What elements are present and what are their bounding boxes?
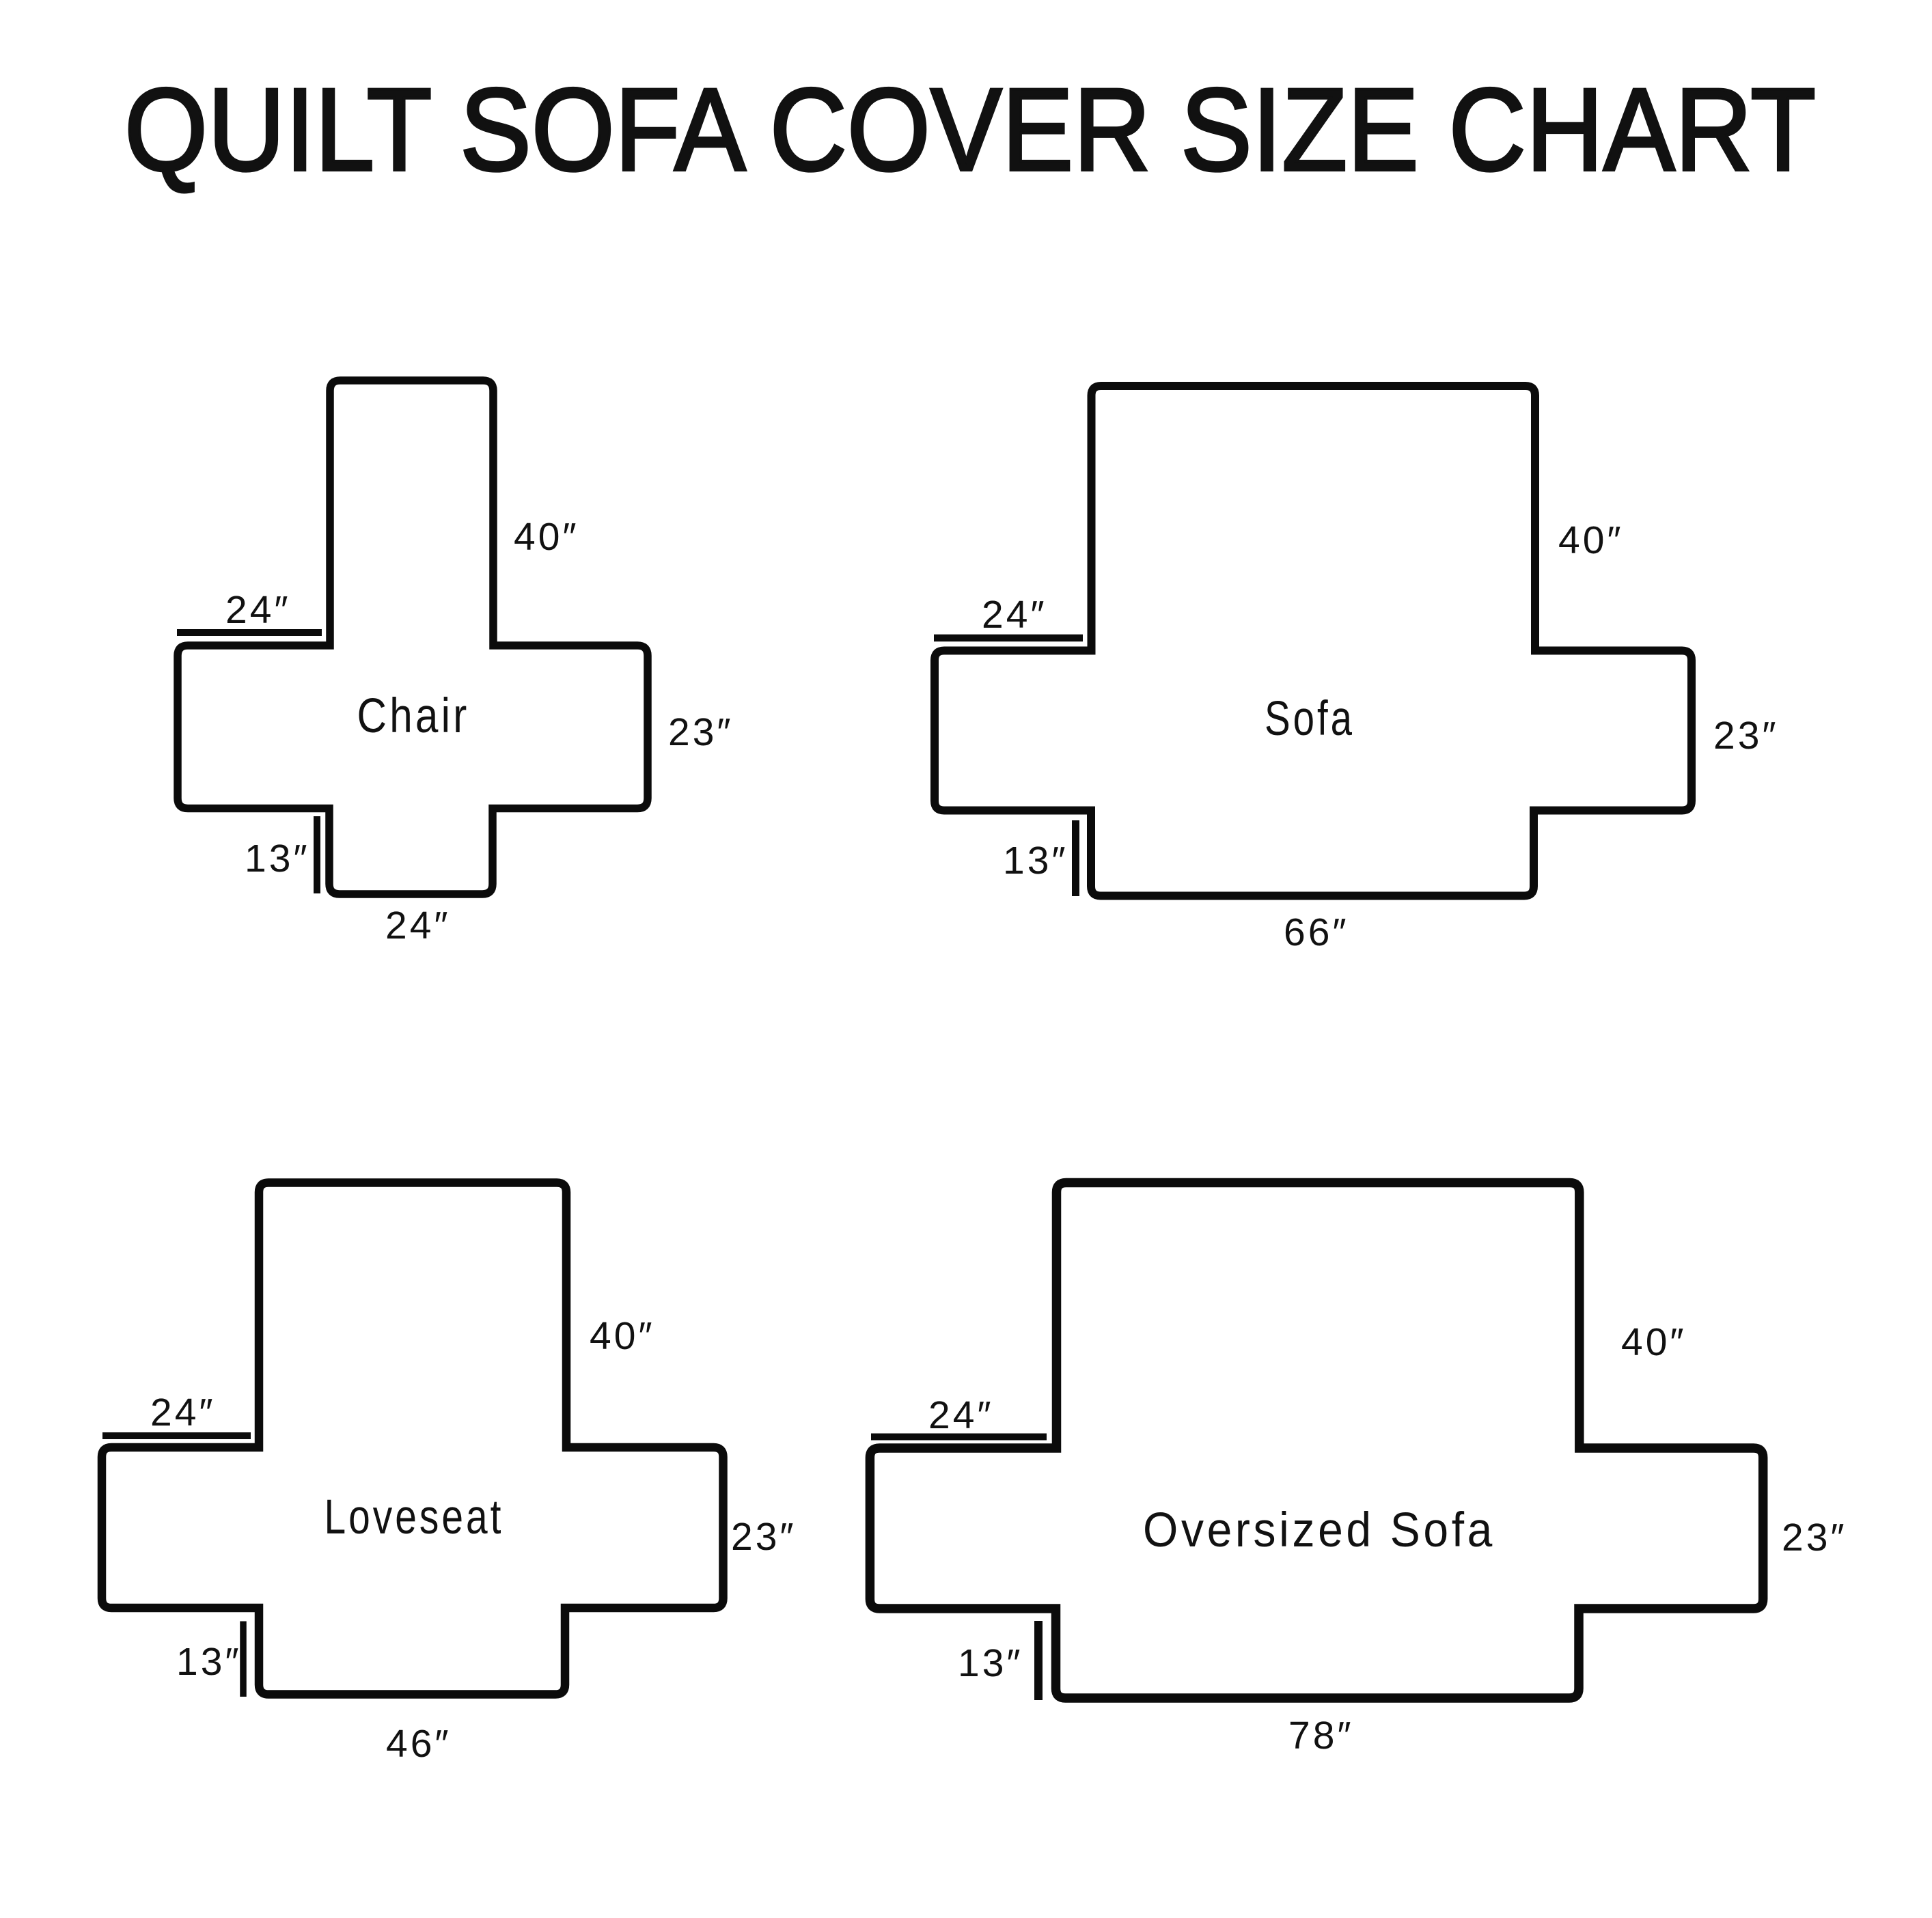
svg-text:40″: 40″ [590, 1314, 655, 1358]
svg-text:QUILT SOFA COVER SIZE CHART: QUILT SOFA COVER SIZE CHART [124, 64, 1816, 195]
svg-text:24″: 24″ [982, 593, 1047, 637]
svg-text:66″: 66″ [1284, 911, 1349, 954]
svg-text:13″: 13″ [958, 1641, 1023, 1685]
svg-text:Oversized Sofa: Oversized Sofa [1143, 1503, 1495, 1557]
svg-text:24″: 24″ [150, 1391, 216, 1434]
svg-text:23″: 23″ [731, 1515, 797, 1559]
svg-text:Loveseat: Loveseat [325, 1490, 504, 1544]
svg-text:Chair: Chair [357, 689, 470, 743]
svg-text:40″: 40″ [1558, 518, 1624, 562]
svg-text:40″: 40″ [514, 515, 579, 559]
svg-text:Sofa: Sofa [1265, 692, 1355, 746]
svg-text:13″: 13″ [245, 837, 310, 880]
svg-text:13″: 13″ [1003, 839, 1068, 882]
svg-text:78″: 78″ [1288, 1714, 1354, 1757]
svg-text:23″: 23″ [1782, 1516, 1847, 1559]
svg-text:24″: 24″ [928, 1393, 994, 1437]
svg-text:40″: 40″ [1621, 1320, 1687, 1364]
svg-text:46″: 46″ [386, 1722, 452, 1766]
svg-text:23″: 23″ [668, 710, 734, 754]
svg-text:23″: 23″ [1713, 714, 1779, 758]
svg-text:24″: 24″ [385, 904, 451, 947]
svg-text:13″: 13″ [176, 1640, 242, 1684]
svg-text:24″: 24″ [225, 588, 291, 632]
